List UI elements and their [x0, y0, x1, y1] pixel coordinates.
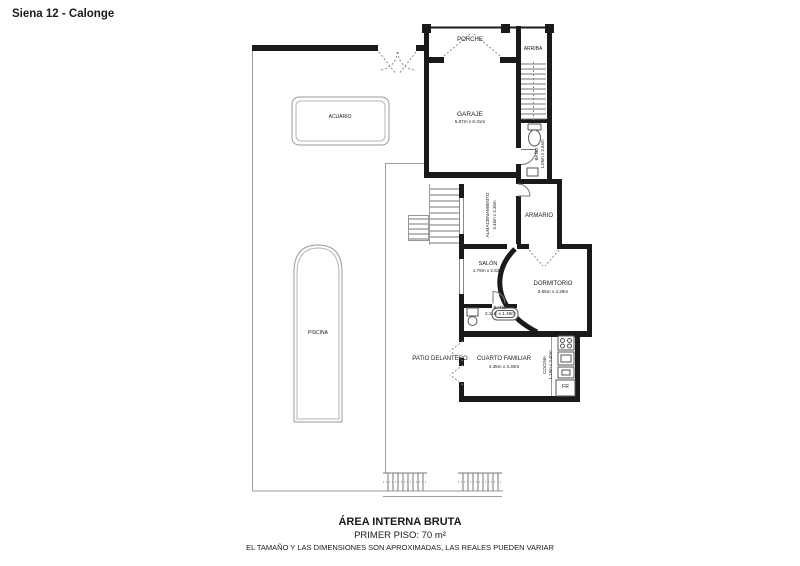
counter-unit-icon — [558, 367, 574, 378]
footer-disclaimer: EL TAMAÑO Y LAS DIMENSIONES SON APROXIMA… — [0, 543, 800, 552]
stove-icon — [558, 336, 574, 350]
room-label-arriba: ARRIBA — [519, 46, 547, 53]
footer-area-title: ÁREA INTERNA BRUTA — [0, 516, 800, 528]
patio-top-wall — [252, 45, 425, 51]
room-label-piscina: PISCINA — [294, 330, 342, 337]
stairs-treads — [383, 64, 546, 491]
room-label-salon: SALÓN 1.79m x 2.63m — [462, 261, 514, 274]
room-label-dormitorio: DORMITORIO 3.55m x 4.29m — [520, 281, 586, 295]
room-label-bano-garaje: BAÑO 1.05m x 2.54m — [534, 139, 546, 168]
fridge-label: FR — [556, 384, 575, 391]
room-label-garaje: GARAJE 5.87m x 6.31m — [424, 111, 516, 125]
sink-icon — [527, 168, 538, 176]
plan-linework — [0, 0, 800, 566]
room-label-patio-delantero: PATIO DELANTERO — [396, 356, 484, 364]
room-label-almacenamiento: ALMACENAMIENTO 2.46m x 3.35m — [486, 193, 498, 238]
aquarium-shape — [292, 97, 389, 145]
room-label-armario: ARMARIO — [520, 213, 558, 221]
floor-plan: PORCHE ARRIBA GARAJE 5.87m x 6.31m BAÑO … — [0, 0, 800, 566]
room-label-cocina: COCINA 1.19m x 3.40m — [542, 350, 554, 379]
oven-icon — [558, 352, 574, 365]
toilet2-icon — [467, 308, 478, 326]
room-label-bano-salon: BAÑO 2.11m x 1.49m — [480, 305, 520, 317]
room-label-porche: PORCHE — [424, 37, 516, 45]
room-label-acuario: ACUARIO — [298, 114, 382, 121]
footer-floor-area: PRIMER PISO: 70 m² — [0, 530, 800, 541]
floor-plan-page: Siena 12 - Calonge — [0, 0, 800, 566]
